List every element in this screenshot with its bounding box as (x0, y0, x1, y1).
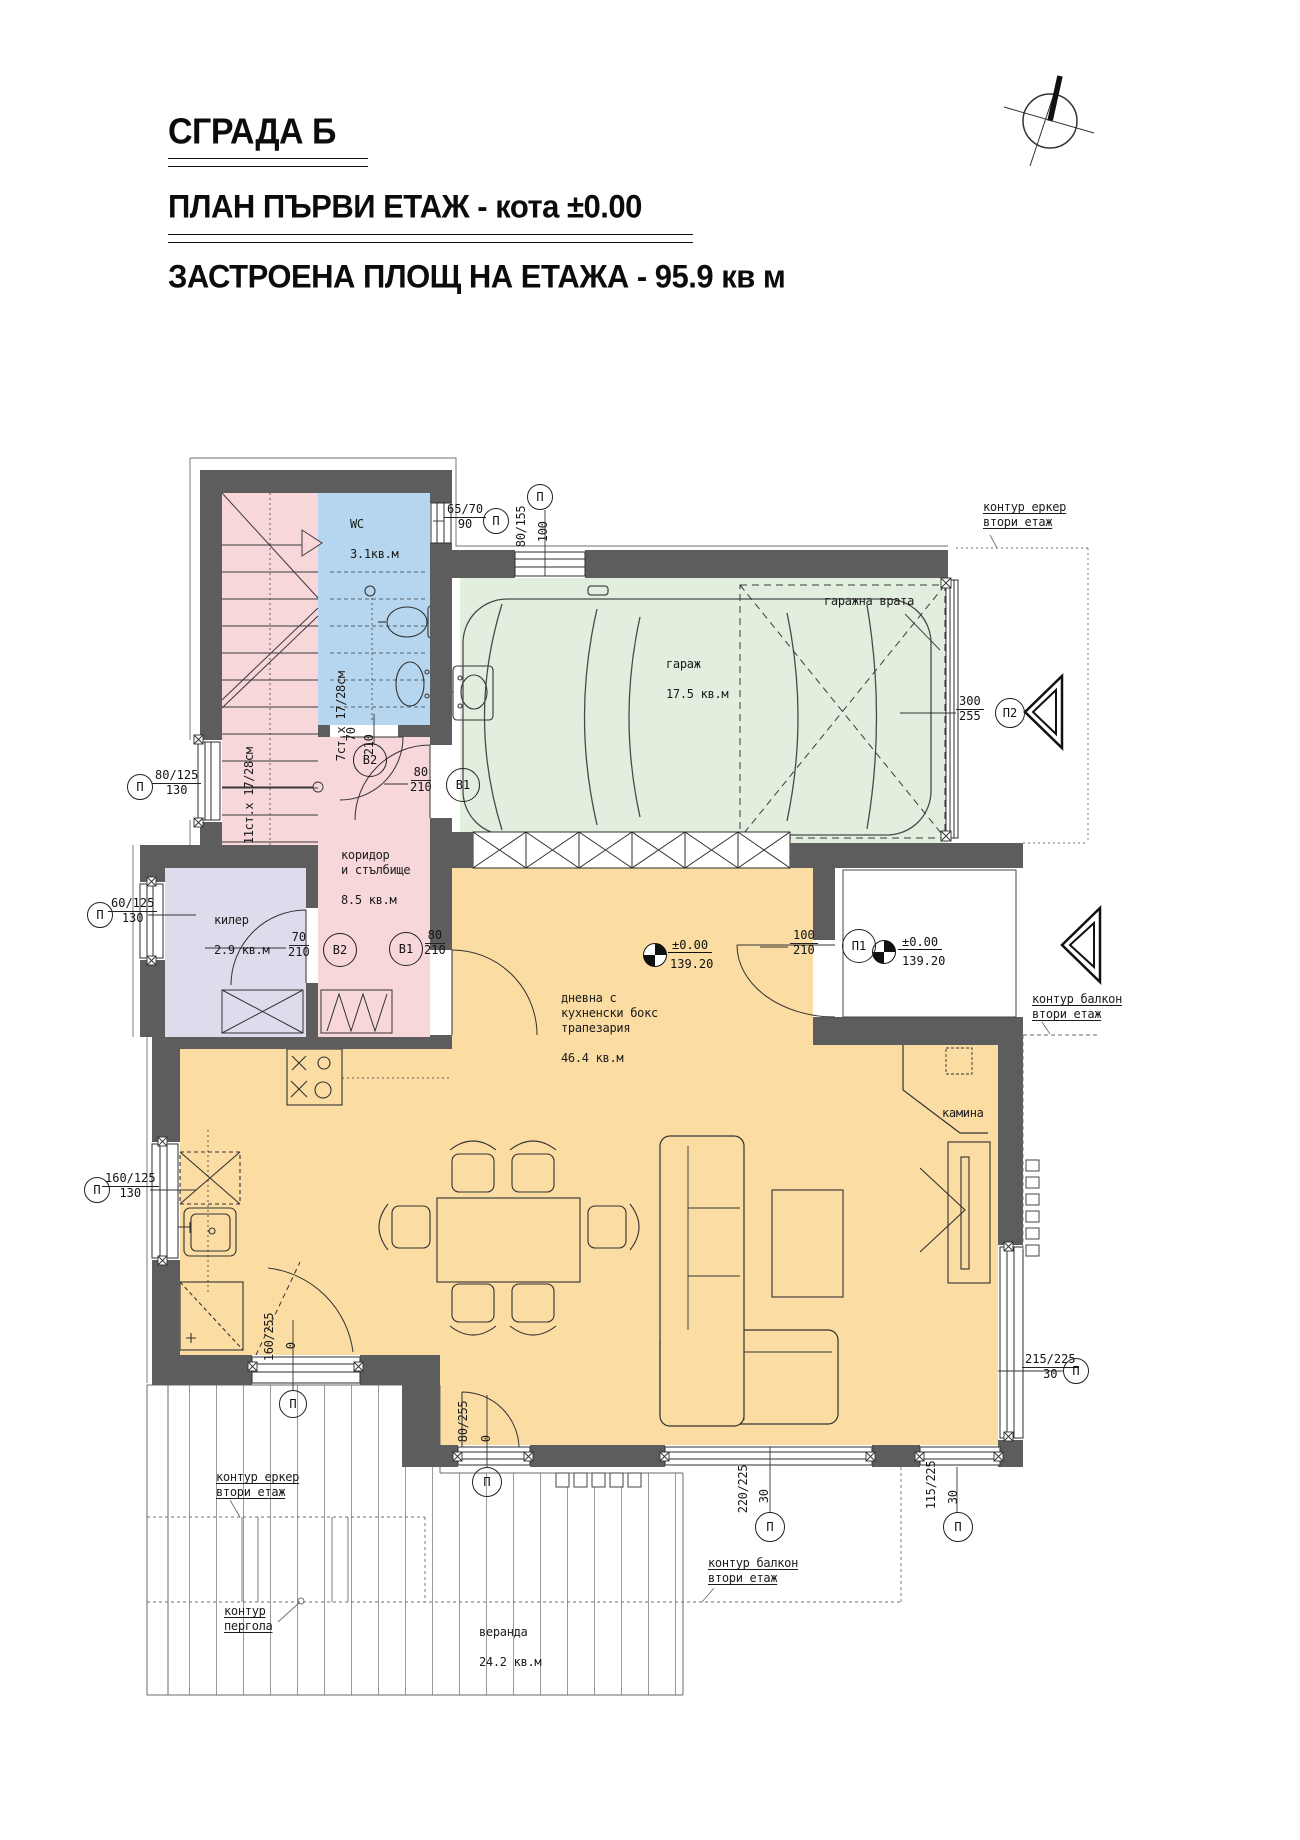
dim-storage-window: 60/125 130 (108, 897, 157, 926)
marker-storage-door: В2 (323, 933, 357, 967)
room-veranda-area: 24.2 кв.м (479, 1655, 541, 1669)
dim-terrace-window-large-sill: 30 (758, 1489, 771, 1503)
room-label-garage: гараж 17.5 кв.м (666, 642, 728, 702)
dim-terrace-window-small-size: 115/225 (925, 1461, 938, 1509)
dim-kitchen-window: 160/125 130 (102, 1172, 159, 1201)
dim-garage-inner-door-w: 80 (411, 766, 431, 781)
dim-garage-window-size: 80/155 (515, 506, 528, 548)
marker-side-window: П (1063, 1358, 1089, 1384)
dim-stair-window-sill: 130 (166, 784, 188, 798)
marker-stair-window: П (127, 774, 153, 800)
room-storage-area: 2.9 кв.м (214, 943, 269, 957)
pergola-contour-label: контур пергола (224, 1604, 272, 1634)
page-title-building: СГРАДА Б (168, 112, 336, 153)
marker-terrace-window-small: П (943, 1512, 973, 1542)
title-underline-1 (168, 158, 368, 167)
dim-terrace-window-large-size: 220/225 (737, 1465, 750, 1513)
balcony-contour-bottom-label: контур балкон втори етаж (708, 1556, 798, 1586)
marker-storage-window: П (87, 902, 113, 928)
dim-storage-window-sill: 130 (122, 912, 144, 926)
level-living-elevation: ±0.00 (668, 938, 712, 953)
marker-garage-inner-door: В1 (446, 768, 480, 802)
dim-terrace-window-small-sill: 30 (947, 1490, 960, 1504)
dim-kitchen-terrace-door-sill: 0 (285, 1342, 298, 1349)
dim-garage-gate-w: 300 (956, 695, 984, 710)
dim-wc-window: 65/70 90 (444, 503, 486, 532)
marker-living-terrace-door: П (472, 1467, 502, 1497)
level-living-absolute: 139.20 (670, 957, 713, 971)
stair-flight-upper-label: 7ст.х 17/28см (335, 671, 348, 761)
room-storage-name: килер (214, 913, 249, 927)
dim-living-terrace-door-sill: 0 (480, 1435, 493, 1442)
marker-entry-door: П1 (842, 929, 876, 963)
marker-wc-door: В2 (353, 743, 387, 777)
dim-entry-door-w: 100 (790, 929, 818, 944)
bay-contour-top-label: контур еркер втори етаж (983, 500, 1066, 530)
garage-door-label: гаражна врата (824, 594, 914, 609)
bay-contour-bottom-label: контур еркер втори етаж (216, 1470, 299, 1500)
dim-garage-window-sill: 100 (537, 521, 550, 542)
marker-kitchen-terrace-door: П (279, 1390, 307, 1418)
dim-stair-window-size: 80/125 (152, 769, 201, 784)
dim-storage-window-size: 60/125 (108, 897, 157, 912)
level-symbol-living (643, 943, 667, 967)
room-garage-area: 17.5 кв.м (666, 687, 728, 701)
room-garage-name: гараж (666, 657, 701, 671)
room-label-veranda: веранда 24.2 кв.м (479, 1610, 541, 1670)
room-label-storage: килер 2.9 кв.м (214, 898, 269, 958)
dim-living-inner-door-w: 80 (425, 929, 445, 944)
dim-kitchen-window-size: 160/125 (102, 1172, 159, 1187)
dim-living-inner-door-h: 210 (424, 944, 446, 958)
balcony-contour-right-label: контур балкон втори етаж (1032, 992, 1122, 1022)
room-wc-name: WC (350, 517, 364, 531)
dim-living-inner-door: 80 210 (424, 929, 446, 958)
dim-side-window-sill: 30 (1043, 1368, 1057, 1382)
dim-garage-inner-door: 80 210 (410, 766, 432, 795)
dim-wc-window-size: 65/70 (444, 503, 486, 518)
room-living-area: 46.4 кв.м (561, 1051, 623, 1065)
dim-entry-door-h: 210 (793, 944, 815, 958)
marker-kitchen-window: П (84, 1177, 110, 1203)
room-veranda-name: веранда (479, 1625, 527, 1639)
marker-terrace-window-large: П (755, 1512, 785, 1542)
room-label-wc: WC 3.1кв.м (350, 502, 398, 562)
marker-garage-window: П (527, 484, 553, 510)
floor-plan-sheet: СГРАДА Б ПЛАН ПЪРВИ ЕТАЖ - кота ±0.00 ЗА… (0, 0, 1300, 1840)
dim-kitchen-terrace-door-size: 160/255 (263, 1313, 276, 1361)
dim-living-terrace-door-size: 80/255 (457, 1401, 470, 1443)
room-label-living: дневна с кухненски бокс трапезария 46.4 … (561, 976, 658, 1066)
dim-storage-door: 70 210 (288, 931, 310, 960)
dim-kitchen-window-sill: 130 (119, 1187, 141, 1201)
level-entry-absolute: 139.20 (902, 954, 945, 968)
marker-living-inner-door: В1 (389, 932, 423, 966)
dim-storage-door-w: 70 (289, 931, 309, 946)
room-wc-area: 3.1кв.м (350, 547, 398, 561)
dim-garage-gate: 300 255 (956, 695, 984, 724)
room-corridor-area: 8.5 кв.м (341, 893, 396, 907)
dim-entry-door: 100 210 (790, 929, 818, 958)
room-label-corridor: коридор и стълбище 8.5 кв.м (341, 833, 410, 908)
dim-wc-window-sill: 90 (458, 518, 472, 532)
marker-wc-window: П (483, 508, 509, 534)
north-arrow-icon (1004, 76, 1094, 166)
room-living-name: дневна с кухненски бокс трапезария (561, 991, 658, 1035)
dim-garage-inner-door-h: 210 (410, 781, 432, 795)
dim-storage-door-h: 210 (288, 946, 310, 960)
room-corridor-name: коридор и стълбище (341, 848, 410, 877)
fireplace-label: камина (942, 1106, 984, 1121)
dim-garage-gate-h: 255 (959, 710, 981, 724)
page-title-area: ЗАСТРОЕНА ПЛОЩ НА ЕТАЖА - 95.9 кв м (168, 258, 785, 296)
title-underline-2 (168, 234, 693, 243)
dim-stair-window: 80/125 130 (152, 769, 201, 798)
marker-garage-gate: П2 (995, 698, 1025, 728)
door-direction-triangles (1025, 676, 1100, 982)
dim-wc-door-w: 70 (345, 727, 358, 741)
stair-flight-lower-label: 11ст.х 17/28см (243, 747, 256, 844)
vent-grille (473, 832, 790, 868)
page-title-plan: ПЛАН ПЪРВИ ЕТАЖ - кота ±0.00 (168, 188, 642, 226)
level-entry-elevation: ±0.00 (898, 935, 942, 950)
